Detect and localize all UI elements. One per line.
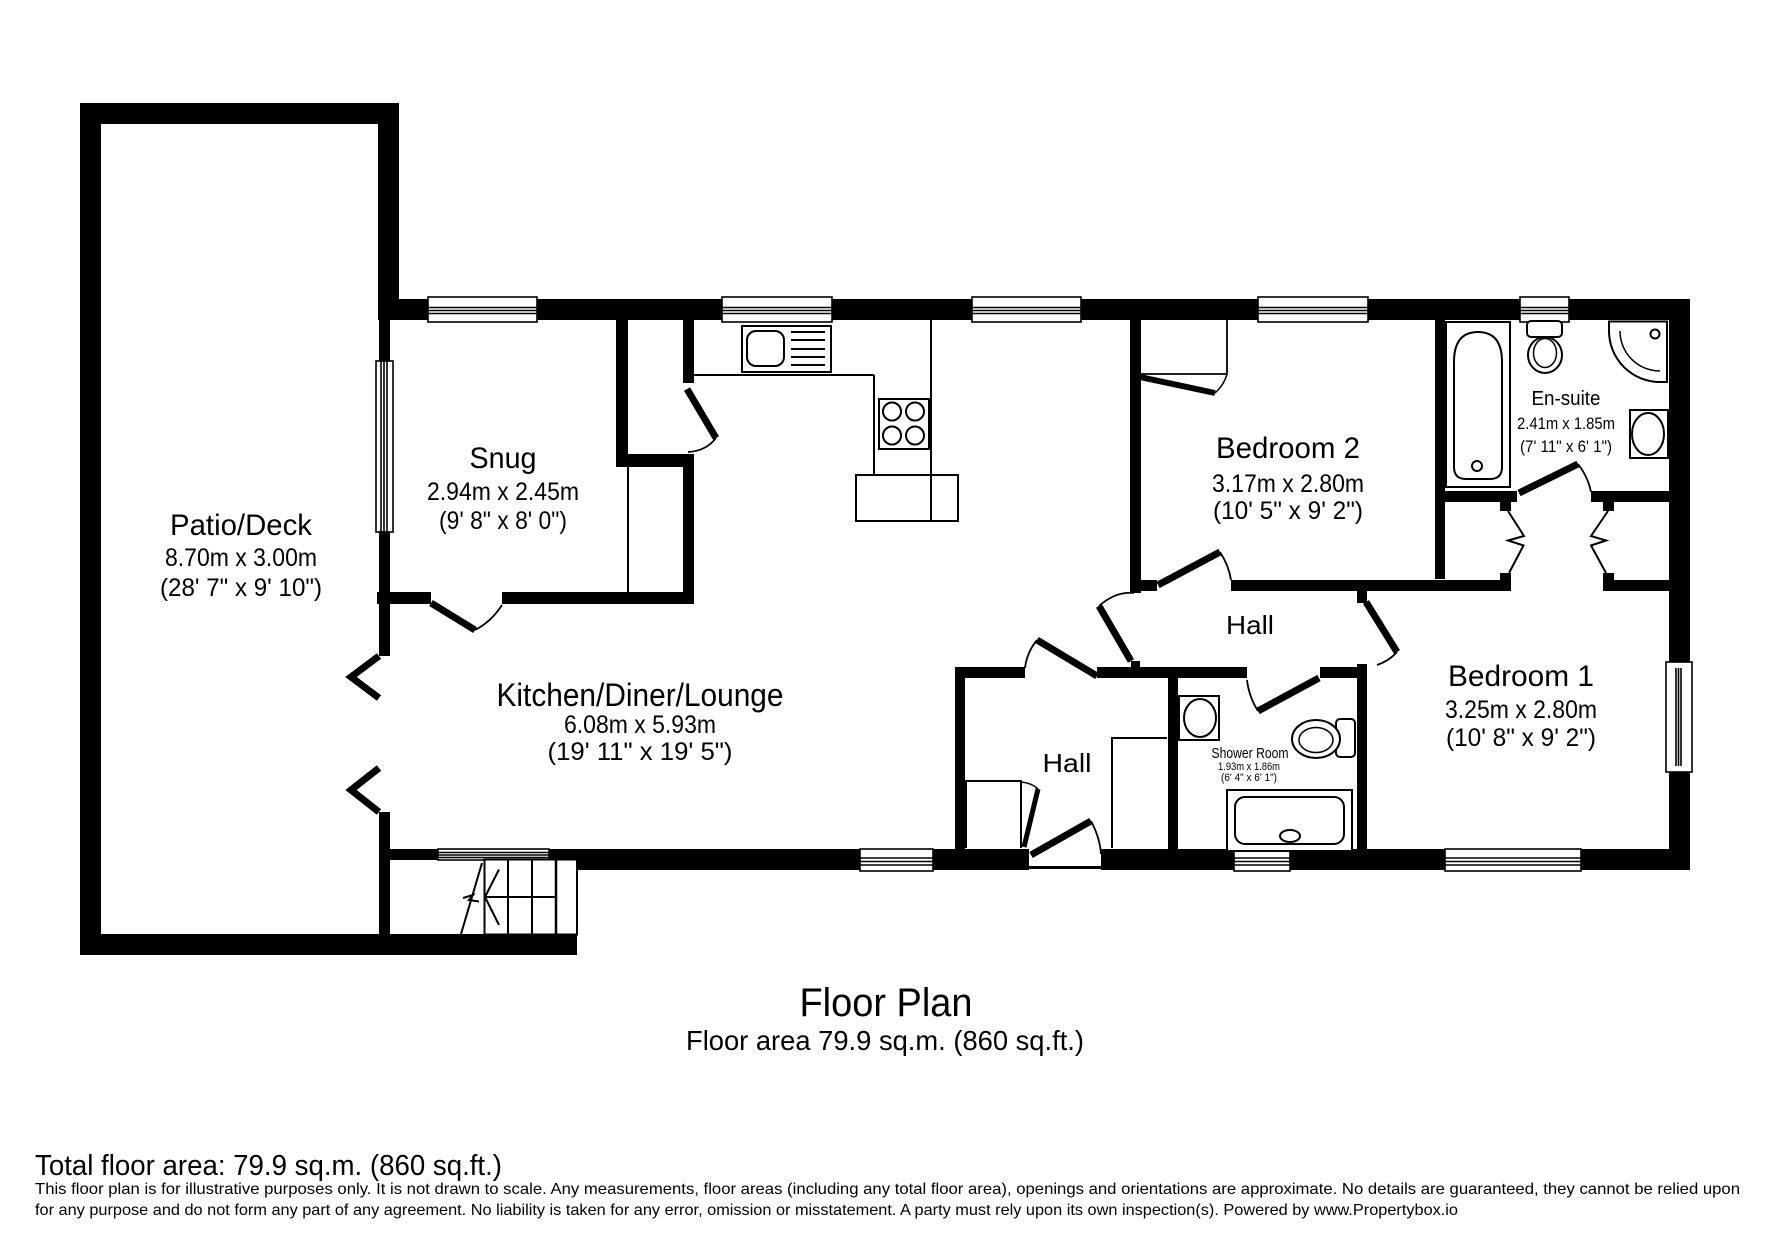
svg-text:Total floor area: 79.9 sq.m. (: Total floor area: 79.9 sq.m. (860 sq.ft.… xyxy=(35,1150,502,1182)
svg-text:Hall: Hall xyxy=(1226,610,1274,640)
svg-text:2.41m x 1.85m: 2.41m x 1.85m xyxy=(1517,414,1615,433)
svg-text:Kitchen/Diner/Lounge: Kitchen/Diner/Lounge xyxy=(497,677,784,713)
svg-text:(6' 4" x 6' 1"): (6' 4" x 6' 1") xyxy=(1221,772,1277,784)
svg-text:6.08m x 5.93m: 6.08m x 5.93m xyxy=(564,711,716,739)
svg-text:Floor area 79.9 sq.m. (860 sq.: Floor area 79.9 sq.m. (860 sq.ft.) xyxy=(686,1025,1084,1056)
svg-text:(28' 7" x 9' 10"): (28' 7" x 9' 10") xyxy=(160,574,322,602)
svg-text:Snug: Snug xyxy=(470,442,537,475)
svg-text:Shower Room: Shower Room xyxy=(1212,745,1289,762)
svg-text:8.70m x 3.00m: 8.70m x 3.00m xyxy=(165,544,317,572)
svg-text:Patio/Deck: Patio/Deck xyxy=(170,509,313,542)
svg-text:Bedroom 2: Bedroom 2 xyxy=(1216,432,1360,465)
svg-text:Hall: Hall xyxy=(1043,748,1092,778)
svg-text:2.94m x 2.45m: 2.94m x 2.45m xyxy=(427,478,579,506)
svg-text:3.17m x 2.80m: 3.17m x 2.80m xyxy=(1212,470,1364,498)
svg-text:Bedroom 1: Bedroom 1 xyxy=(1448,660,1594,693)
svg-text:3.25m x 2.80m: 3.25m x 2.80m xyxy=(1445,696,1597,724)
svg-text:En-suite: En-suite xyxy=(1532,388,1601,410)
svg-text:This floor plan is for illustr: This floor plan is for illustrative purp… xyxy=(35,1181,1740,1198)
svg-text:(7' 11" x 6' 1"): (7' 11" x 6' 1") xyxy=(1520,437,1612,456)
svg-text:for any purpose and do not for: for any purpose and do not form any part… xyxy=(35,1202,1458,1219)
svg-text:(9' 8" x 8' 0"): (9' 8" x 8' 0") xyxy=(439,507,567,535)
svg-text:Floor Plan: Floor Plan xyxy=(800,981,973,1025)
svg-text:(19' 11" x 19' 5"): (19' 11" x 19' 5") xyxy=(548,738,733,766)
svg-text:(10' 5" x 9' 2"): (10' 5" x 9' 2") xyxy=(1213,497,1363,525)
svg-text:(10' 8" x 9' 2"): (10' 8" x 9' 2") xyxy=(1446,724,1596,752)
